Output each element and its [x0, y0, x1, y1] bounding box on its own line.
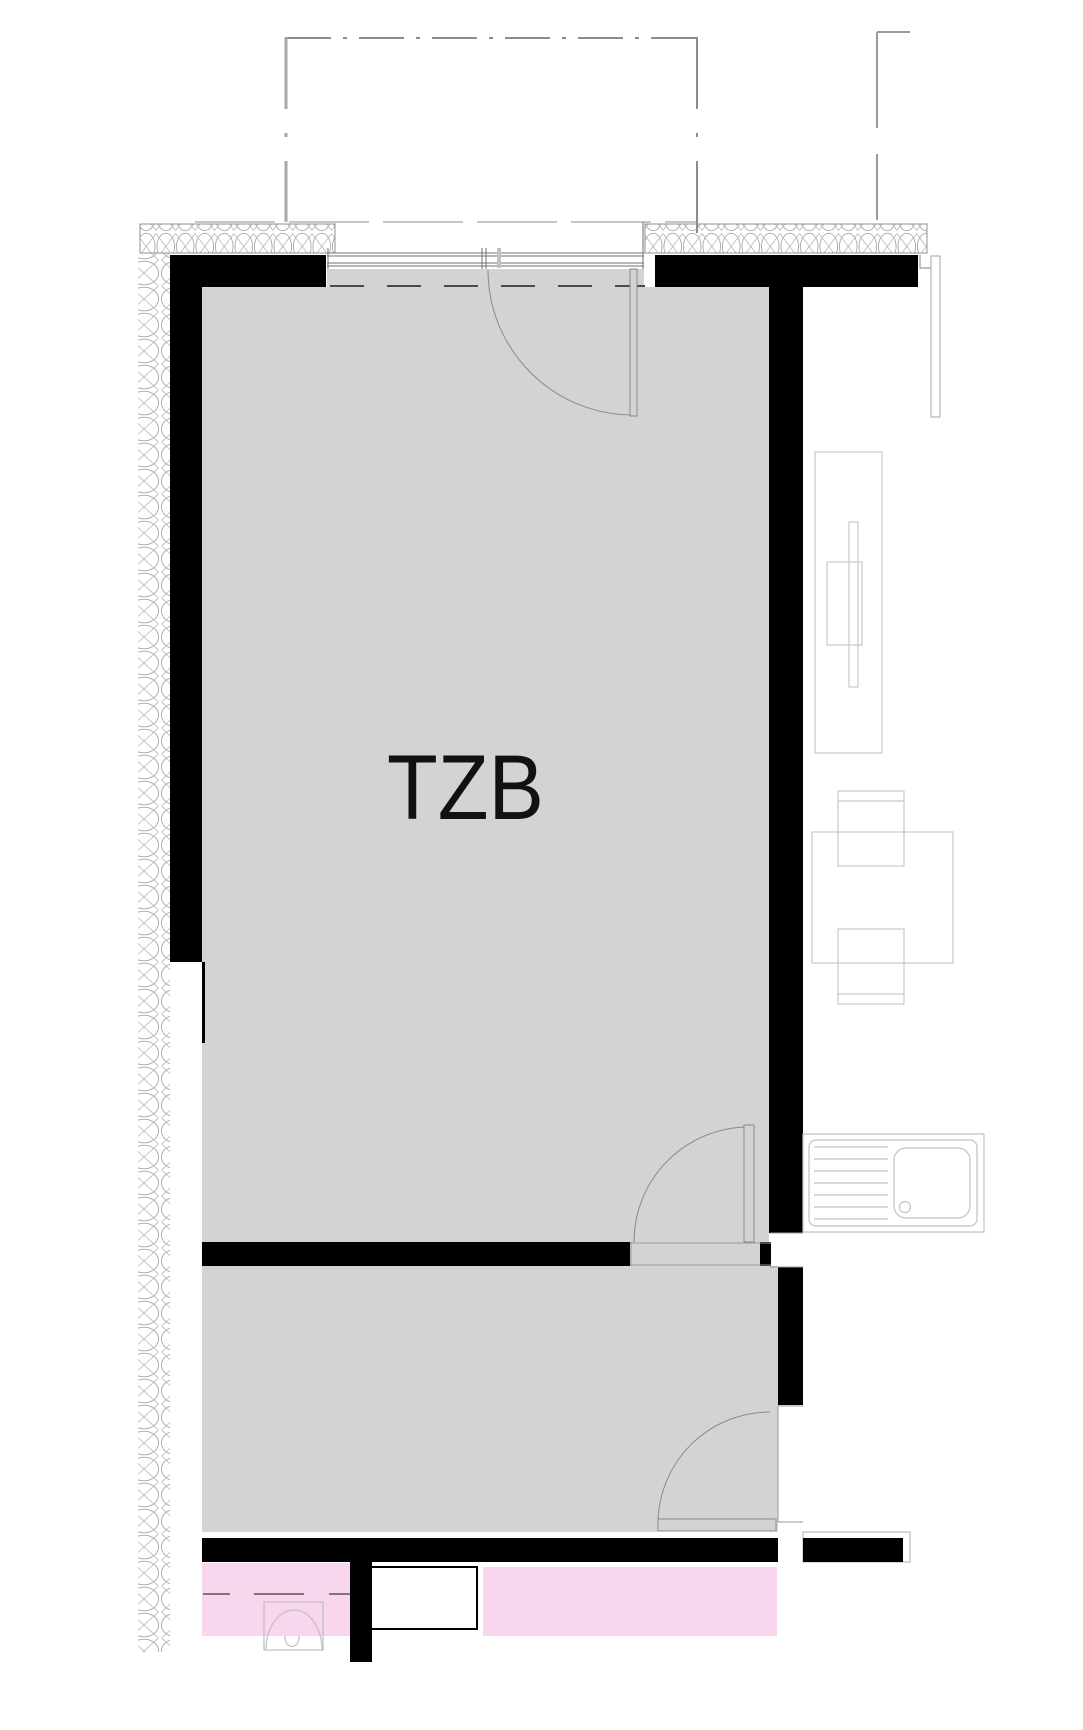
wall-right	[769, 287, 803, 1233]
wall-left	[170, 255, 202, 962]
room-lower-floor	[202, 1266, 778, 1530]
floor-plan-drawing: TZB	[0, 0, 1083, 1730]
insulation-strip-top-right	[645, 224, 927, 253]
wall-bottom-stub	[350, 1538, 372, 1662]
insulation-strip-top-left	[140, 224, 335, 253]
window-sill-strip	[327, 269, 644, 288]
wall-interior	[202, 1242, 630, 1266]
window-frame-mark	[497, 248, 501, 268]
shaft-box	[371, 1567, 477, 1629]
wall-top-right	[655, 255, 918, 287]
door-threshold-fill	[630, 1242, 760, 1266]
wall-bottom-right	[803, 1538, 903, 1562]
wall-bottom-left	[202, 1538, 778, 1562]
room-fill-group	[202, 269, 778, 1530]
lower-door-leaf	[658, 1519, 776, 1531]
pink-zone-right	[483, 1567, 777, 1636]
balcony-door-leaf	[630, 269, 637, 416]
wall-interior-stub	[760, 1242, 771, 1266]
pink-zone-left	[202, 1563, 350, 1636]
wall-right-lower	[778, 1267, 803, 1405]
room-label-tzb: TZB	[387, 737, 544, 839]
floor-plan-canvas: TZB	[0, 0, 1083, 1730]
insulation-strip-left	[138, 253, 170, 1652]
wall-left-thin	[202, 962, 205, 1043]
interior-door-leaf	[744, 1125, 754, 1242]
